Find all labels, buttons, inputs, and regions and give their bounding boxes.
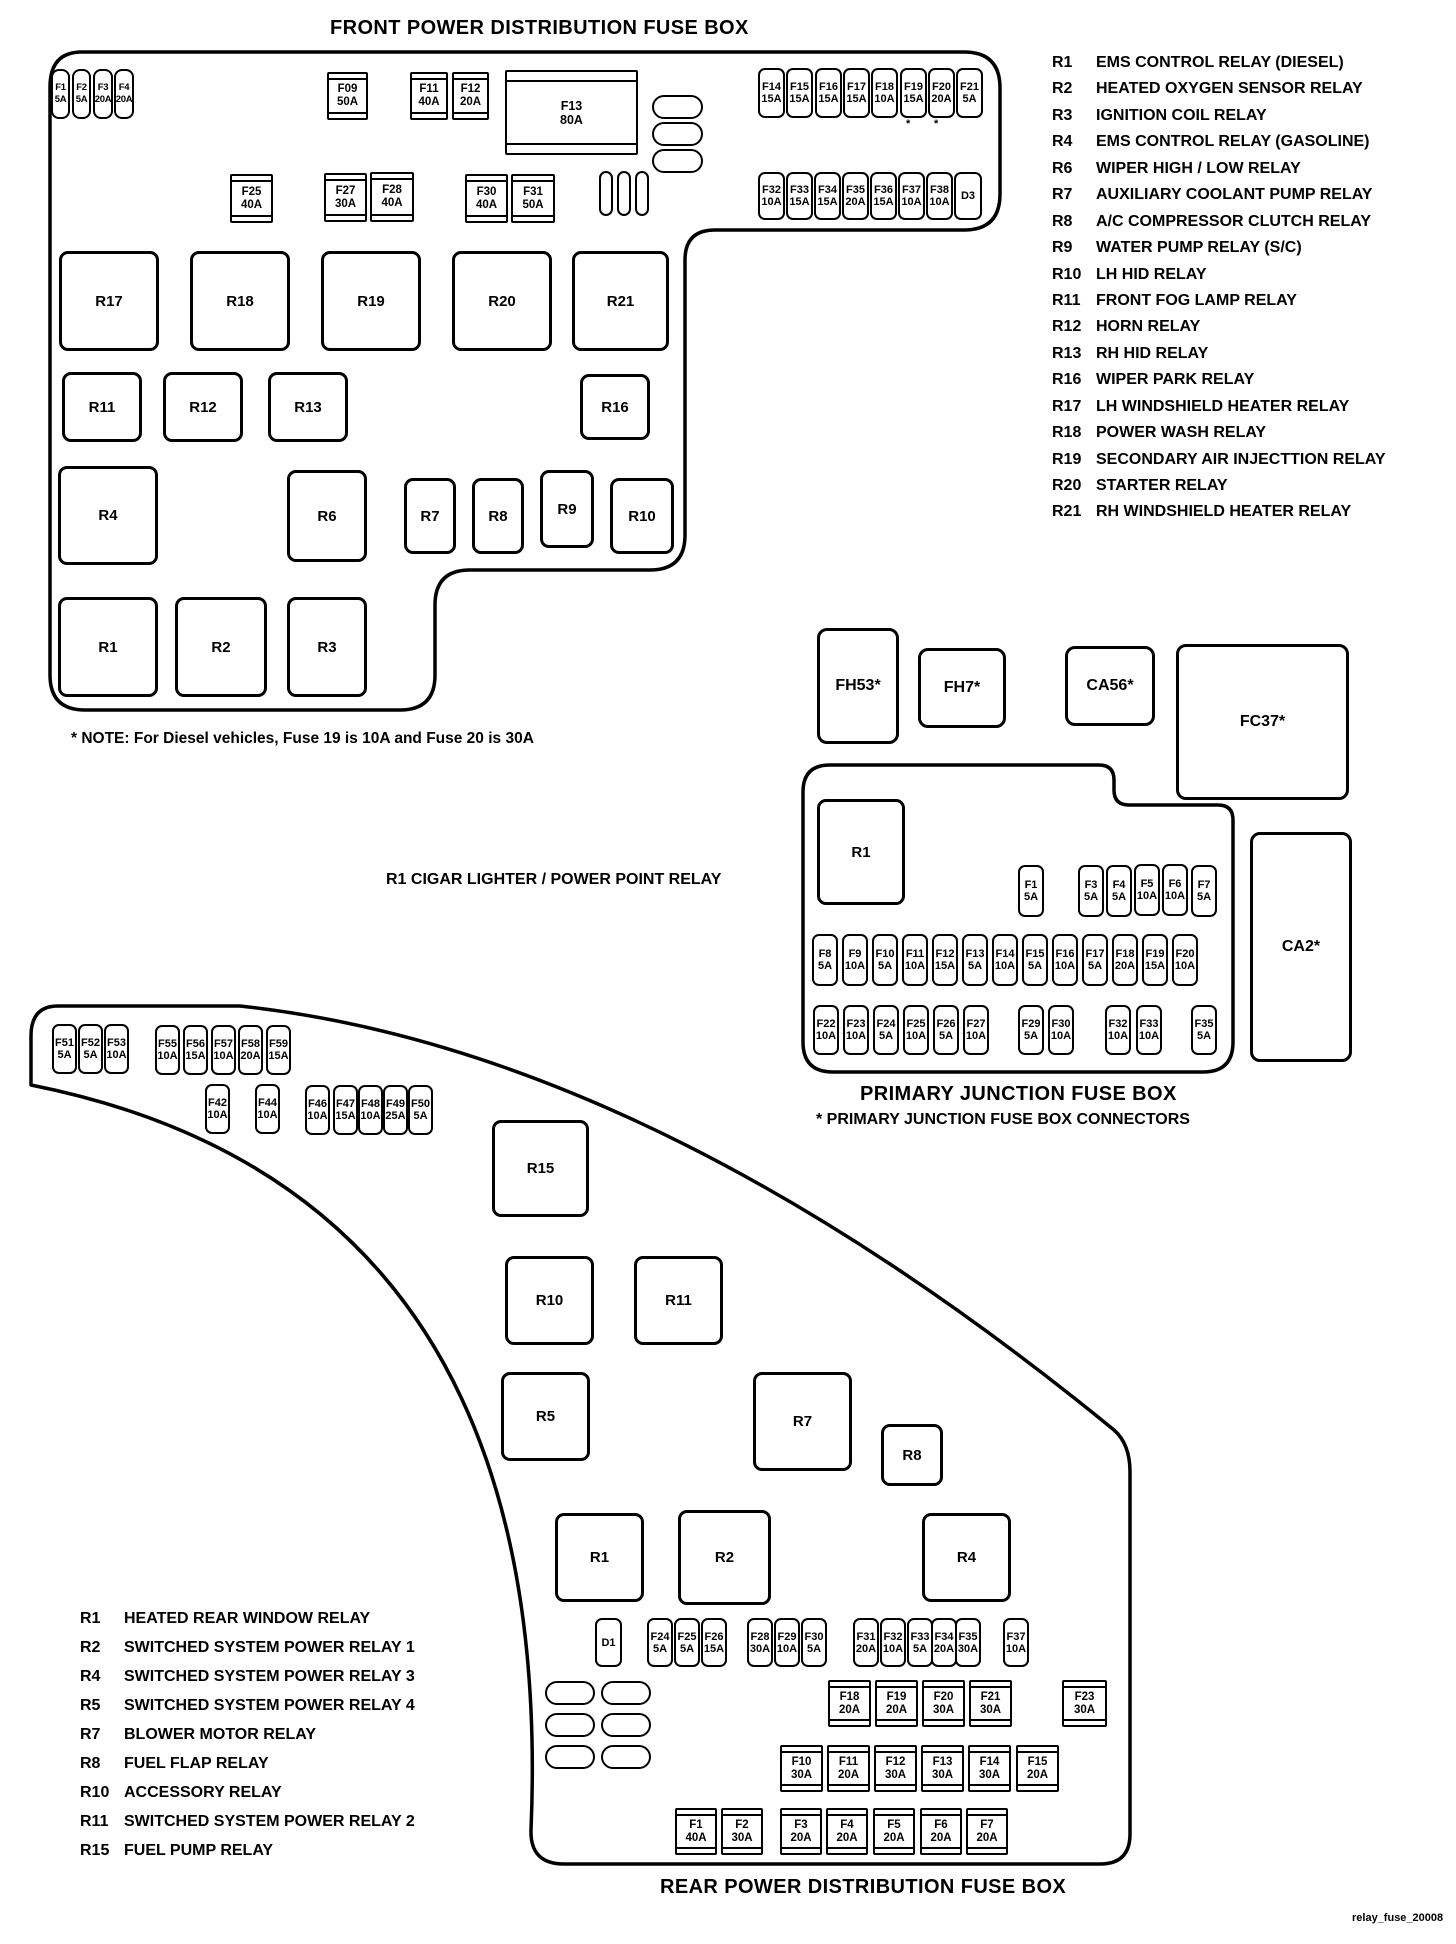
fuse-amp: 5A [57, 1049, 71, 1061]
fuse-id: F30 [1052, 1018, 1071, 1030]
rear-relay-R2: R2 [678, 1510, 771, 1605]
pjb-fuse-F23: F2310A [843, 1005, 869, 1055]
legend-relay-id: R2 [1052, 80, 1096, 106]
fuse-id: F13 [933, 1756, 953, 1769]
rear-legend-row: R11SWITCHED SYSTEM POWER RELAY 2 [80, 1813, 415, 1842]
front-legend-row: R4EMS CONTROL RELAY (GASOLINE) [1052, 133, 1386, 159]
front-fuse-F34: F3415A [814, 172, 841, 220]
rear-fuse-F57: F5710A [211, 1025, 236, 1075]
relay-id: R5 [536, 1408, 555, 1425]
fuse-id: F32 [884, 1631, 903, 1643]
front-empty-slot [599, 171, 613, 216]
fuse-id: F16 [1056, 948, 1075, 960]
front-relay-legend: R1EMS CONTROL RELAY (DIESEL)R2HEATED OXY… [1052, 54, 1386, 530]
fuse-amp: 20A [838, 1769, 859, 1782]
front-fuse-F28: F2840A [370, 172, 414, 222]
front-fuse-F21: F215A [956, 68, 983, 118]
fuse-amp: 25A [385, 1110, 405, 1122]
rear-fuse-F31: F3120A [853, 1618, 879, 1667]
fuse-amp: 50A [337, 96, 358, 109]
rear-fuse-F24: F245A [647, 1618, 673, 1667]
fuse-id: F25 [678, 1631, 697, 1643]
pjb-connector-FH53: FH53* [817, 628, 899, 744]
legend-relay-id: R5 [80, 1697, 124, 1726]
rear-fuse-F4: F420A [826, 1808, 868, 1855]
rear-legend-row: R10ACCESSORY RELAY [80, 1784, 415, 1813]
fuse-amp: 10A [883, 1643, 903, 1655]
fuse-amp: 15A [818, 93, 838, 105]
fuse-amp: 15A [268, 1050, 288, 1062]
fuse-id: D3 [961, 190, 975, 202]
relay-id: R8 [488, 508, 507, 525]
legend-relay-id: R19 [1052, 451, 1096, 477]
fuse-id: F57 [214, 1038, 233, 1050]
fuse-id: F52 [81, 1037, 100, 1049]
legend-relay-label: FRONT FOG LAMP RELAY [1096, 292, 1297, 318]
rear-fuse-F12: F1230A [874, 1745, 917, 1792]
front-fuse-F3: F320A [93, 69, 113, 119]
fuse-id: F35 [1195, 1018, 1214, 1030]
legend-relay-id: R1 [80, 1610, 124, 1639]
rear-legend-row: R8FUEL FLAP RELAY [80, 1755, 415, 1784]
fuse-amp: 5A [1024, 1030, 1038, 1042]
pjb-fuse-F8: F85A [812, 934, 838, 986]
rear-fuse-F6: F620A [920, 1808, 962, 1855]
rear-fuse-F47: F4715A [333, 1085, 358, 1135]
rear-fuse-F53: F5310A [104, 1024, 129, 1074]
fuse-id: F15 [1028, 1756, 1048, 1769]
connector-id: FH53* [835, 677, 880, 695]
pjb-connector-CA2: CA2* [1250, 832, 1352, 1062]
fuse-id: F28 [382, 184, 402, 197]
fuse-amp: 10A [845, 960, 865, 972]
front-fuse-F20: F2020A [928, 68, 955, 118]
fuse-id: F8 [819, 948, 832, 960]
fuse-id: F21 [960, 81, 979, 93]
fuse-id: F34 [818, 184, 837, 196]
fuse-amp: 15A [935, 960, 955, 972]
fuse-amp: 40A [381, 197, 402, 210]
front-empty-slot [652, 149, 703, 173]
relay-id: R20 [488, 293, 516, 310]
fuse-id: F11 [906, 948, 924, 960]
fuse-id: F51 [55, 1037, 74, 1049]
fuse-amp: 10A [1108, 1030, 1128, 1042]
front-fuse-F30: F3040A [465, 174, 508, 223]
fuse-id: F35 [959, 1631, 978, 1643]
fuse-id: F7 [1198, 879, 1211, 891]
front-fuse-F31: F3150A [511, 174, 555, 223]
fuse-id: F48 [361, 1098, 380, 1110]
fuse-amp: 30A [980, 1704, 1001, 1717]
fuse-amp: 5A [879, 1030, 893, 1042]
fuse-id: F16 [819, 81, 838, 93]
legend-relay-label: SWITCHED SYSTEM POWER RELAY 3 [124, 1668, 415, 1697]
fuse-amp: 15A [761, 93, 781, 105]
front-relay-R6: R6 [287, 470, 367, 562]
front-relay-R10: R10 [610, 478, 674, 554]
front-empty-slot [652, 95, 703, 119]
front-legend-row: R18POWER WASH RELAY [1052, 424, 1386, 450]
rear-fuse-F59: F5915A [266, 1025, 291, 1075]
front-relay-R9: R9 [540, 470, 594, 548]
legend-relay-label: IGNITION COIL RELAY [1096, 107, 1267, 133]
fuse-id: F3 [1085, 879, 1098, 891]
front-relay-R3: R3 [287, 597, 367, 697]
fuse-id: F12 [886, 1756, 906, 1769]
relay-id: R1 [590, 1549, 609, 1566]
fuse-id: F42 [208, 1097, 227, 1109]
fuse-id: F6 [1169, 878, 1182, 890]
fuse-amp: 10A [905, 960, 925, 972]
front-legend-row: R20STARTER RELAY [1052, 477, 1386, 503]
fuse-amp: 30A [933, 1704, 954, 1717]
fuse-id: F11 [419, 83, 438, 96]
rear-fuse-F7: F720A [966, 1808, 1008, 1855]
pjb-fuse-F14: F1410A [992, 934, 1018, 986]
fuse-id: F2 [735, 1819, 748, 1832]
front-relay-R4: R4 [58, 466, 158, 565]
rear-fuse-F19: F1920A [875, 1680, 918, 1727]
front-legend-row: R12HORN RELAY [1052, 318, 1386, 344]
fuse-id: F17 [1086, 948, 1105, 960]
fuse-id: F46 [308, 1098, 327, 1110]
legend-relay-id: R7 [80, 1726, 124, 1755]
rear-fuse-F49: F4925A [383, 1085, 408, 1135]
rear-empty-slot [545, 1745, 595, 1769]
fuse-id: F23 [1075, 1691, 1095, 1704]
fuse-amp: 15A [335, 1110, 355, 1122]
legend-relay-label: SECONDARY AIR INJECTTION RELAY [1096, 451, 1386, 477]
fuse-amp: 10A [1051, 1030, 1071, 1042]
fuse-id: F4 [840, 1819, 853, 1832]
fuse-id: F19 [904, 81, 923, 93]
front-fuse-F35: F3520A [842, 172, 869, 220]
rear-fuse-F26: F2615A [701, 1618, 727, 1667]
legend-relay-id: R6 [1052, 160, 1096, 186]
fuse-amp: 5A [913, 1643, 927, 1655]
rear-fuse-F55: F5510A [155, 1025, 180, 1075]
legend-relay-id: R10 [80, 1784, 124, 1813]
legend-relay-id: R16 [1052, 371, 1096, 397]
legend-relay-label: FUEL PUMP RELAY [124, 1842, 273, 1871]
fuse-id: F10 [876, 948, 895, 960]
fuse-id: F23 [847, 1018, 866, 1030]
relay-id: R13 [294, 399, 322, 416]
legend-relay-label: BLOWER MOTOR RELAY [124, 1726, 316, 1755]
legend-relay-label: EMS CONTROL RELAY (DIESEL) [1096, 54, 1344, 80]
fuse-amp: 20A [460, 96, 481, 109]
rear-fuse-F5: F520A [873, 1808, 915, 1855]
rear-fuse-F42: F4210A [205, 1084, 230, 1134]
fuse-amp: 20A [845, 196, 865, 208]
front-relay-R20: R20 [452, 251, 552, 351]
fuse-id: F25 [907, 1018, 926, 1030]
fuse-id: F14 [996, 948, 1015, 960]
fuse-id: F38 [930, 184, 949, 196]
fuse-id: F20 [1176, 948, 1195, 960]
rear-fuse-F30: F305A [801, 1618, 827, 1667]
fuse-id: F10 [792, 1756, 812, 1769]
front-legend-row: R7AUXILIARY COOLANT PUMP RELAY [1052, 186, 1386, 212]
rear-fuse-F33: F335A [907, 1618, 933, 1667]
legend-relay-label: SWITCHED SYSTEM POWER RELAY 2 [124, 1813, 415, 1842]
asterisk-glyph: * [906, 118, 910, 130]
fuse-id: F5 [1141, 878, 1154, 890]
rear-fuse-F2: F230A [721, 1808, 763, 1855]
fuse-amp: 15A [704, 1643, 724, 1655]
legend-relay-label: A/C COMPRESSOR CLUTCH RELAY [1096, 213, 1371, 239]
relay-id: R2 [715, 1549, 734, 1566]
fuse-amp: 10A [1137, 890, 1157, 902]
fuse-id: F5 [887, 1819, 900, 1832]
fuse-amp: 10A [777, 1643, 797, 1655]
fuse-id: F14 [762, 81, 781, 93]
fuse-amp: 20A [930, 1832, 951, 1845]
rear-fuse-F15: F1520A [1016, 1745, 1059, 1792]
connector-id: FH7* [944, 679, 980, 697]
rear-fuse-F44: F4410A [255, 1084, 280, 1134]
fuse-id: F31 [857, 1631, 876, 1643]
fuse-amp: 20A [95, 94, 112, 106]
fuse-amp: 20A [116, 94, 133, 106]
rear-relay-R4: R4 [922, 1513, 1011, 1602]
front-legend-row: R19SECONDARY AIR INJECTTION RELAY [1052, 451, 1386, 477]
fuse-amp: 10A [966, 1030, 986, 1042]
rear-fuse-F23: F2330A [1062, 1680, 1107, 1727]
legend-relay-label: HORN RELAY [1096, 318, 1200, 344]
front-relay-R17: R17 [59, 251, 159, 351]
rear-relay-R8: R8 [881, 1424, 943, 1486]
connector-id: CA56* [1086, 677, 1133, 695]
front-legend-row: R13RH HID RELAY [1052, 345, 1386, 371]
pjb-fuse-F17: F175A [1082, 934, 1108, 986]
pjb-fuse-F35: F355A [1191, 1005, 1217, 1055]
fuse-amp: 30A [791, 1769, 812, 1782]
fuse-amp: 15A [873, 196, 893, 208]
legend-relay-label: RH HID RELAY [1096, 345, 1208, 371]
fuse-amp: 10A [157, 1050, 177, 1062]
fuse-amp: 5A [1197, 1030, 1211, 1042]
fuse-id: F20 [932, 81, 951, 93]
front-fuse-F25: F2540A [230, 174, 273, 223]
rear-relay-R11: R11 [634, 1256, 723, 1345]
front-legend-row: R10LH HID RELAY [1052, 266, 1386, 292]
fuse-id: F13 [561, 99, 583, 113]
fuse-amp: 30A [750, 1643, 770, 1655]
fuse-id: F37 [1007, 1631, 1026, 1643]
fuse-amp: 20A [1115, 960, 1135, 972]
rear-legend-row: R5SWITCHED SYSTEM POWER RELAY 4 [80, 1697, 415, 1726]
fuse-id: F50 [411, 1098, 430, 1110]
legend-relay-id: R21 [1052, 503, 1096, 529]
rear-fuse-F18: F1820A [828, 1680, 871, 1727]
relay-id: R1 [851, 844, 870, 861]
fuse-amp: 5A [1084, 891, 1098, 903]
fuse-id: F29 [1022, 1018, 1041, 1030]
legend-relay-label: LH HID RELAY [1096, 266, 1207, 292]
fuse-id: F12 [461, 83, 481, 96]
fuse-id: F35 [846, 184, 865, 196]
relay-id: R16 [601, 399, 629, 416]
fuse-amp: 30A [335, 198, 356, 211]
fuse-amp: 10A [106, 1049, 126, 1061]
rear-relay-R15: R15 [492, 1120, 589, 1217]
legend-relay-id: R13 [1052, 345, 1096, 371]
fuse-id: F18 [840, 1691, 860, 1704]
legend-relay-label: STARTER RELAY [1096, 477, 1228, 503]
legend-relay-label: RH WINDSHIELD HEATER RELAY [1096, 503, 1351, 529]
fuse-amp: 15A [789, 196, 809, 208]
fuse-amp: 5A [962, 93, 976, 105]
fuse-amp: 5A [55, 94, 67, 106]
front-relay-R7: R7 [404, 478, 456, 554]
fuse-id: F36 [874, 184, 893, 196]
fuse-id: F30 [805, 1631, 824, 1643]
rear-empty-slot [545, 1713, 595, 1737]
pjb-fuse-F20: F2010A [1172, 934, 1198, 986]
fuse-amp: 10A [1175, 960, 1195, 972]
fuse-amp: 15A [846, 93, 866, 105]
rear-fuse-D1: D1 [595, 1618, 622, 1667]
pjb-connector-FH7: FH7* [918, 648, 1006, 728]
fuse-id: F25 [242, 186, 262, 199]
pjb-fuse-F32: F3210A [1105, 1005, 1131, 1055]
relay-id: R7 [793, 1413, 812, 1430]
rear-fuse-F3: F320A [780, 1808, 822, 1855]
relay-id: R17 [95, 293, 123, 310]
rear-fuse-F58: F5820A [238, 1025, 263, 1075]
front-fuse-F11: F1140A [410, 72, 448, 120]
legend-relay-label: AUXILIARY COOLANT PUMP RELAY [1096, 186, 1372, 212]
fuse-amp: 5A [413, 1110, 427, 1122]
front-relay-R16: R16 [580, 374, 650, 440]
relay-id: R15 [527, 1160, 555, 1177]
fuse-id: F3 [98, 82, 109, 94]
fuse-amp: 5A [1088, 960, 1102, 972]
pjb-fuse-F9: F910A [842, 934, 868, 986]
legend-relay-id: R15 [80, 1842, 124, 1871]
fuse-amp: 10A [207, 1109, 227, 1121]
legend-relay-label: LH WINDSHIELD HEATER RELAY [1096, 398, 1349, 424]
relay-id: R18 [226, 293, 254, 310]
pjb-relay-R1: R1 [817, 799, 905, 905]
fuse-id: F22 [817, 1018, 836, 1030]
front-legend-row: R8A/C COMPRESSOR CLUTCH RELAY [1052, 213, 1386, 239]
fuse-id: F7 [980, 1819, 993, 1832]
rear-relay-R1: R1 [555, 1513, 644, 1602]
pjb-fuse-F12: F1215A [932, 934, 958, 986]
front-relay-R18: R18 [190, 251, 290, 351]
fuse-amp: 5A [878, 960, 892, 972]
fuse-amp: 5A [680, 1643, 694, 1655]
fuse-id: F19 [1146, 948, 1165, 960]
relay-id: R1 [98, 639, 117, 656]
fuse-amp: 10A [901, 196, 921, 208]
fuse-id: F59 [269, 1038, 288, 1050]
front-relay-R19: R19 [321, 251, 421, 351]
fuse-amp: 10A [816, 1030, 836, 1042]
front-legend-row: R3IGNITION COIL RELAY [1052, 107, 1386, 133]
rear-fuse-F32: F3210A [880, 1618, 906, 1667]
fuse-id: F1 [1025, 879, 1038, 891]
rear-legend-row: R4SWITCHED SYSTEM POWER RELAY 3 [80, 1668, 415, 1697]
asterisk-glyph: * [934, 118, 938, 130]
pjb-fuse-F26: F265A [933, 1005, 959, 1055]
front-box-title: FRONT POWER DISTRIBUTION FUSE BOX [330, 17, 749, 40]
fuse-amp: 20A [839, 1704, 860, 1717]
fuse-amp: 20A [1027, 1769, 1048, 1782]
watermark-text: relay_fuse_20008 [1352, 1912, 1443, 1924]
front-empty-slot [617, 171, 631, 216]
fuse-id: F12 [936, 948, 955, 960]
pjb-fuse-F18: F1820A [1112, 934, 1138, 986]
fuse-amp: 20A [240, 1050, 260, 1062]
pjb-fuse-F5: F510A [1134, 864, 1160, 916]
fuse-id: F27 [336, 185, 356, 198]
fuse-amp: 5A [807, 1643, 821, 1655]
relay-id: R10 [536, 1292, 564, 1309]
fuse-id: F55 [158, 1038, 177, 1050]
primary-junction-box-title: PRIMARY JUNCTION FUSE BOX [860, 1083, 1177, 1106]
fuse-amp: 5A [653, 1643, 667, 1655]
fuse-amp: 20A [836, 1832, 857, 1845]
front-fuse-F16: F1615A [815, 68, 842, 118]
legend-relay-label: POWER WASH RELAY [1096, 424, 1266, 450]
fuse-amp: 5A [83, 1049, 97, 1061]
fuse-id: F53 [107, 1037, 126, 1049]
fuse-amp: 10A [360, 1110, 380, 1122]
front-relay-R12: R12 [163, 372, 243, 442]
front-diesel-asterisk: * [906, 118, 910, 130]
pjb-fuse-F10: F105A [872, 934, 898, 986]
fuse-amp: 30A [1074, 1704, 1095, 1717]
fuse-amp: 5A [968, 960, 982, 972]
front-legend-row: R16WIPER PARK RELAY [1052, 371, 1386, 397]
rear-fuse-F34: F3420A [931, 1618, 957, 1667]
front-fuse-F18: F1810A [871, 68, 898, 118]
legend-relay-id: R7 [1052, 186, 1096, 212]
pjb-fuse-F3: F35A [1078, 865, 1104, 917]
fuse-id: F33 [790, 184, 809, 196]
primary-r1-note: R1 CIGAR LIGHTER / POWER POINT RELAY [386, 871, 721, 889]
fuse-id: F1 [689, 1819, 702, 1832]
fuse-id: F9 [849, 948, 862, 960]
front-fuse-F17: F1715A [843, 68, 870, 118]
legend-relay-id: R12 [1052, 318, 1096, 344]
relay-id: R19 [357, 293, 385, 310]
front-fuse-F13: F1380A [505, 70, 638, 155]
front-legend-row: R21RH WINDSHIELD HEATER RELAY [1052, 503, 1386, 529]
front-fuse-F4: F420A [114, 69, 134, 119]
relay-id: R4 [98, 507, 117, 524]
rear-legend-row: R1HEATED REAR WINDOW RELAY [80, 1610, 415, 1639]
legend-relay-label: SWITCHED SYSTEM POWER RELAY 1 [124, 1639, 415, 1668]
relay-id: R12 [189, 399, 217, 416]
fuse-amp: 10A [846, 1030, 866, 1042]
front-fuse-F36: F3615A [870, 172, 897, 220]
fuse-amp: 40A [685, 1832, 706, 1845]
fuse-amp: 5A [939, 1030, 953, 1042]
fuse-id: F24 [651, 1631, 670, 1643]
fuse-id: F6 [934, 1819, 947, 1832]
fuse-amp: 10A [1165, 890, 1185, 902]
fuse-amp: 10A [257, 1109, 277, 1121]
front-fuse-F15: F1515A [786, 68, 813, 118]
front-box-diesel-note: * NOTE: For Diesel vehicles, Fuse 19 is … [71, 730, 534, 748]
rear-fuse-F1: F140A [675, 1808, 717, 1855]
pjb-connector-CA56: CA56* [1065, 646, 1155, 726]
